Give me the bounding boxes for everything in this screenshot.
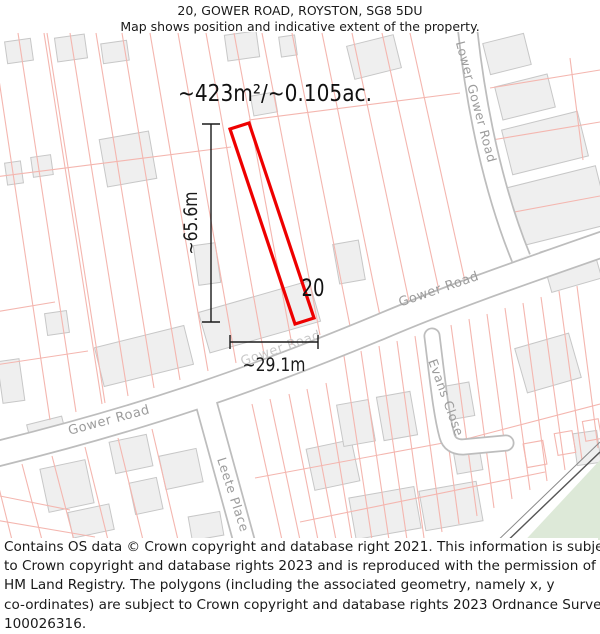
footer-line: 100026316. [4, 615, 598, 634]
copyright-footer: Contains OS data © Crown copyright and d… [4, 538, 598, 634]
property-map: Gower Road Gower Road Gower Road Lower G… [0, 32, 600, 540]
dimension-height-label: ~65.6m [180, 192, 202, 255]
footer-line: HM Land Registry. The polygons (includin… [4, 576, 598, 595]
green-open-space [518, 460, 600, 540]
area-label: ~423m²/~0.105ac. [178, 81, 372, 107]
plot-number-label: 20 [302, 274, 325, 302]
footer-line: co-ordinates) are subject to Crown copyr… [4, 596, 598, 615]
header: 20, GOWER ROAD, ROYSTON, SG8 5DU Map sho… [0, 0, 600, 35]
map-canvas: Gower Road Gower Road Gower Road Lower G… [0, 32, 600, 540]
dimension-width-label: ~29.1m [243, 354, 306, 376]
footer-line: Contains OS data © Crown copyright and d… [4, 538, 598, 557]
footer-line: to Crown copyright and database rights 2… [4, 557, 598, 576]
page-title: 20, GOWER ROAD, ROYSTON, SG8 5DU [0, 3, 600, 19]
page-subtitle: Map shows position and indicative extent… [0, 19, 600, 35]
